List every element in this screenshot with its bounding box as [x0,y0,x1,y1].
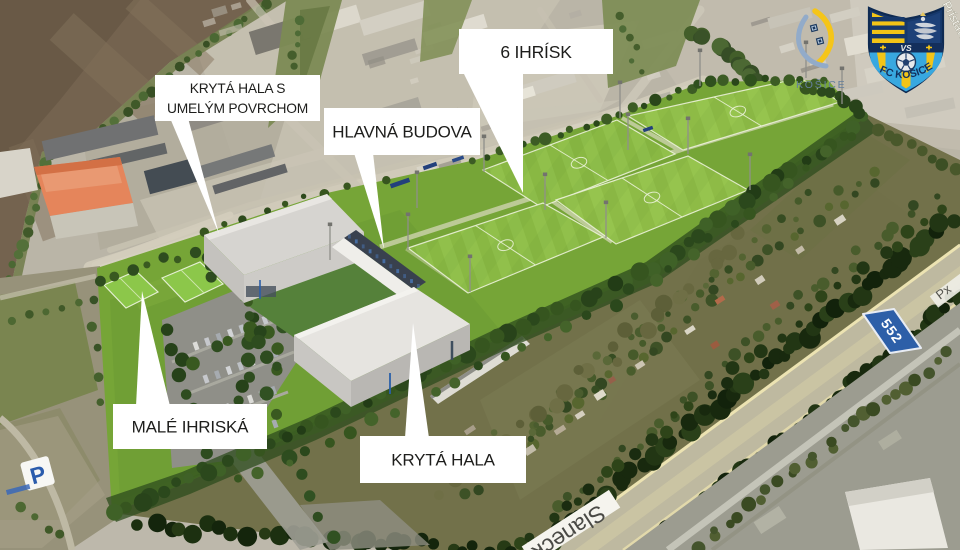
svg-text:KRYTÁ HALA S: KRYTÁ HALA S [190,80,286,96]
svg-text:HLAVNÁ BUDOVA: HLAVNÁ BUDOVA [332,123,472,142]
svg-text:MALÉ IHRISKÁ: MALÉ IHRISKÁ [132,418,249,437]
svg-text:VS: VS [900,43,912,53]
svg-text:KOŠICE: KOŠICE [796,78,846,91]
svg-text:UMELÝM POVRCHOM: UMELÝM POVRCHOM [167,100,308,116]
svg-text:6 IHRÍSK: 6 IHRÍSK [500,42,572,62]
svg-text:KRYTÁ HALA: KRYTÁ HALA [391,451,495,470]
